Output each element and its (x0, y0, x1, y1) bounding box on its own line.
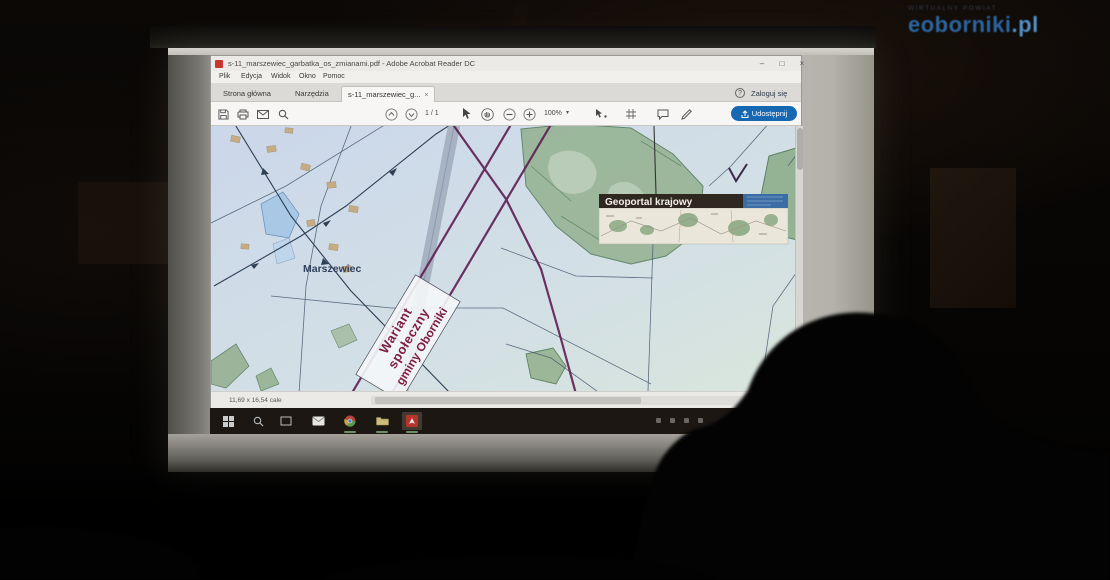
photo-scene: s-11_marszewiec_garbatka_os_zmianami.pdf… (0, 0, 1110, 580)
person-silhouette (0, 0, 1110, 580)
